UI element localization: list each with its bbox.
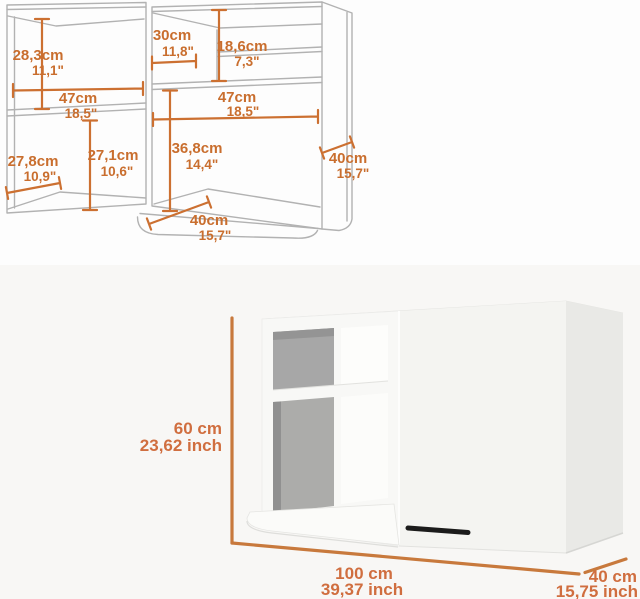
dim-line bbox=[83, 121, 97, 211]
dim-right-upper-width: 30cm 11,8" bbox=[152, 27, 196, 70]
dim-left-upper-height: 28,3cm 11,1" bbox=[13, 19, 64, 109]
dim-cm-label: 27,8cm bbox=[8, 153, 59, 170]
dim-inch-label: 15,7" bbox=[199, 228, 232, 243]
lower-cubby-left-wall bbox=[273, 402, 281, 514]
dim-inch-label: 10,6" bbox=[101, 164, 134, 179]
upper-open-gap bbox=[341, 325, 388, 385]
dim-side-depth: 40cm 15,7" bbox=[320, 136, 369, 181]
dim-cm-label: 18,6cm bbox=[217, 38, 268, 55]
left-unit-bottom-interior bbox=[8, 192, 146, 209]
cabinet-render bbox=[247, 301, 623, 553]
dim-cm-label: 36,8cm bbox=[172, 140, 223, 157]
dim-right-upper-height: 18,6cm 7,3" bbox=[212, 10, 267, 81]
right-unit-top-interior bbox=[153, 13, 322, 28]
left-unit-top-interior bbox=[8, 16, 144, 26]
cabinet-door bbox=[399, 301, 566, 553]
dim-inch-label: 18,5" bbox=[65, 106, 98, 121]
technical-drawing: 28,3cm 11,1" 47cm 18,5" 27,8cm 10,9" 27,… bbox=[0, 0, 640, 265]
lower-cubby-back bbox=[273, 397, 334, 513]
dim-inch-label: 7,3" bbox=[234, 54, 259, 69]
dim-cm-label: 30cm bbox=[153, 27, 191, 44]
dim-inch-label: 18,5" bbox=[227, 104, 260, 119]
dim-inch-label: 11,1" bbox=[32, 63, 64, 78]
dim-cm-label: 27,1cm bbox=[88, 147, 139, 164]
dim-inch-label: 14,4" bbox=[186, 157, 219, 172]
width-inch-label: 39,37 inch bbox=[321, 580, 403, 599]
height-inch-label: 23,62 inch bbox=[140, 436, 222, 455]
product-photo: 60 cm 23,62 inch 100 cm 39,37 inch 40 cm… bbox=[0, 265, 640, 599]
cabinet-right-face bbox=[566, 301, 623, 553]
right-unit-top-inner-edge bbox=[152, 7, 322, 12]
dimension-sheet: 28,3cm 11,1" 47cm 18,5" 27,8cm 10,9" 27,… bbox=[0, 0, 640, 599]
dim-cm-label: 47cm bbox=[59, 90, 97, 107]
dim-cm-label: 28,3cm bbox=[13, 47, 64, 64]
dim-cm-label: 40cm bbox=[329, 150, 367, 167]
dim-right-width: 47cm 18,5" bbox=[153, 89, 318, 126]
dim-bottom-depth: 40cm 15,7" bbox=[147, 196, 231, 243]
left-unit-top-inner-edge bbox=[7, 7, 146, 10]
dim-inch-label: 15,7" bbox=[337, 166, 370, 181]
dim-inch-label: 10,9" bbox=[24, 169, 57, 184]
lower-open-gap bbox=[341, 393, 388, 504]
dim-inch-label: 11,8" bbox=[162, 44, 194, 59]
dim-cm-label: 40cm bbox=[190, 212, 228, 229]
right-unit-bottom-interior bbox=[154, 189, 320, 207]
depth-inch-label: 15,75 inch bbox=[556, 582, 638, 599]
